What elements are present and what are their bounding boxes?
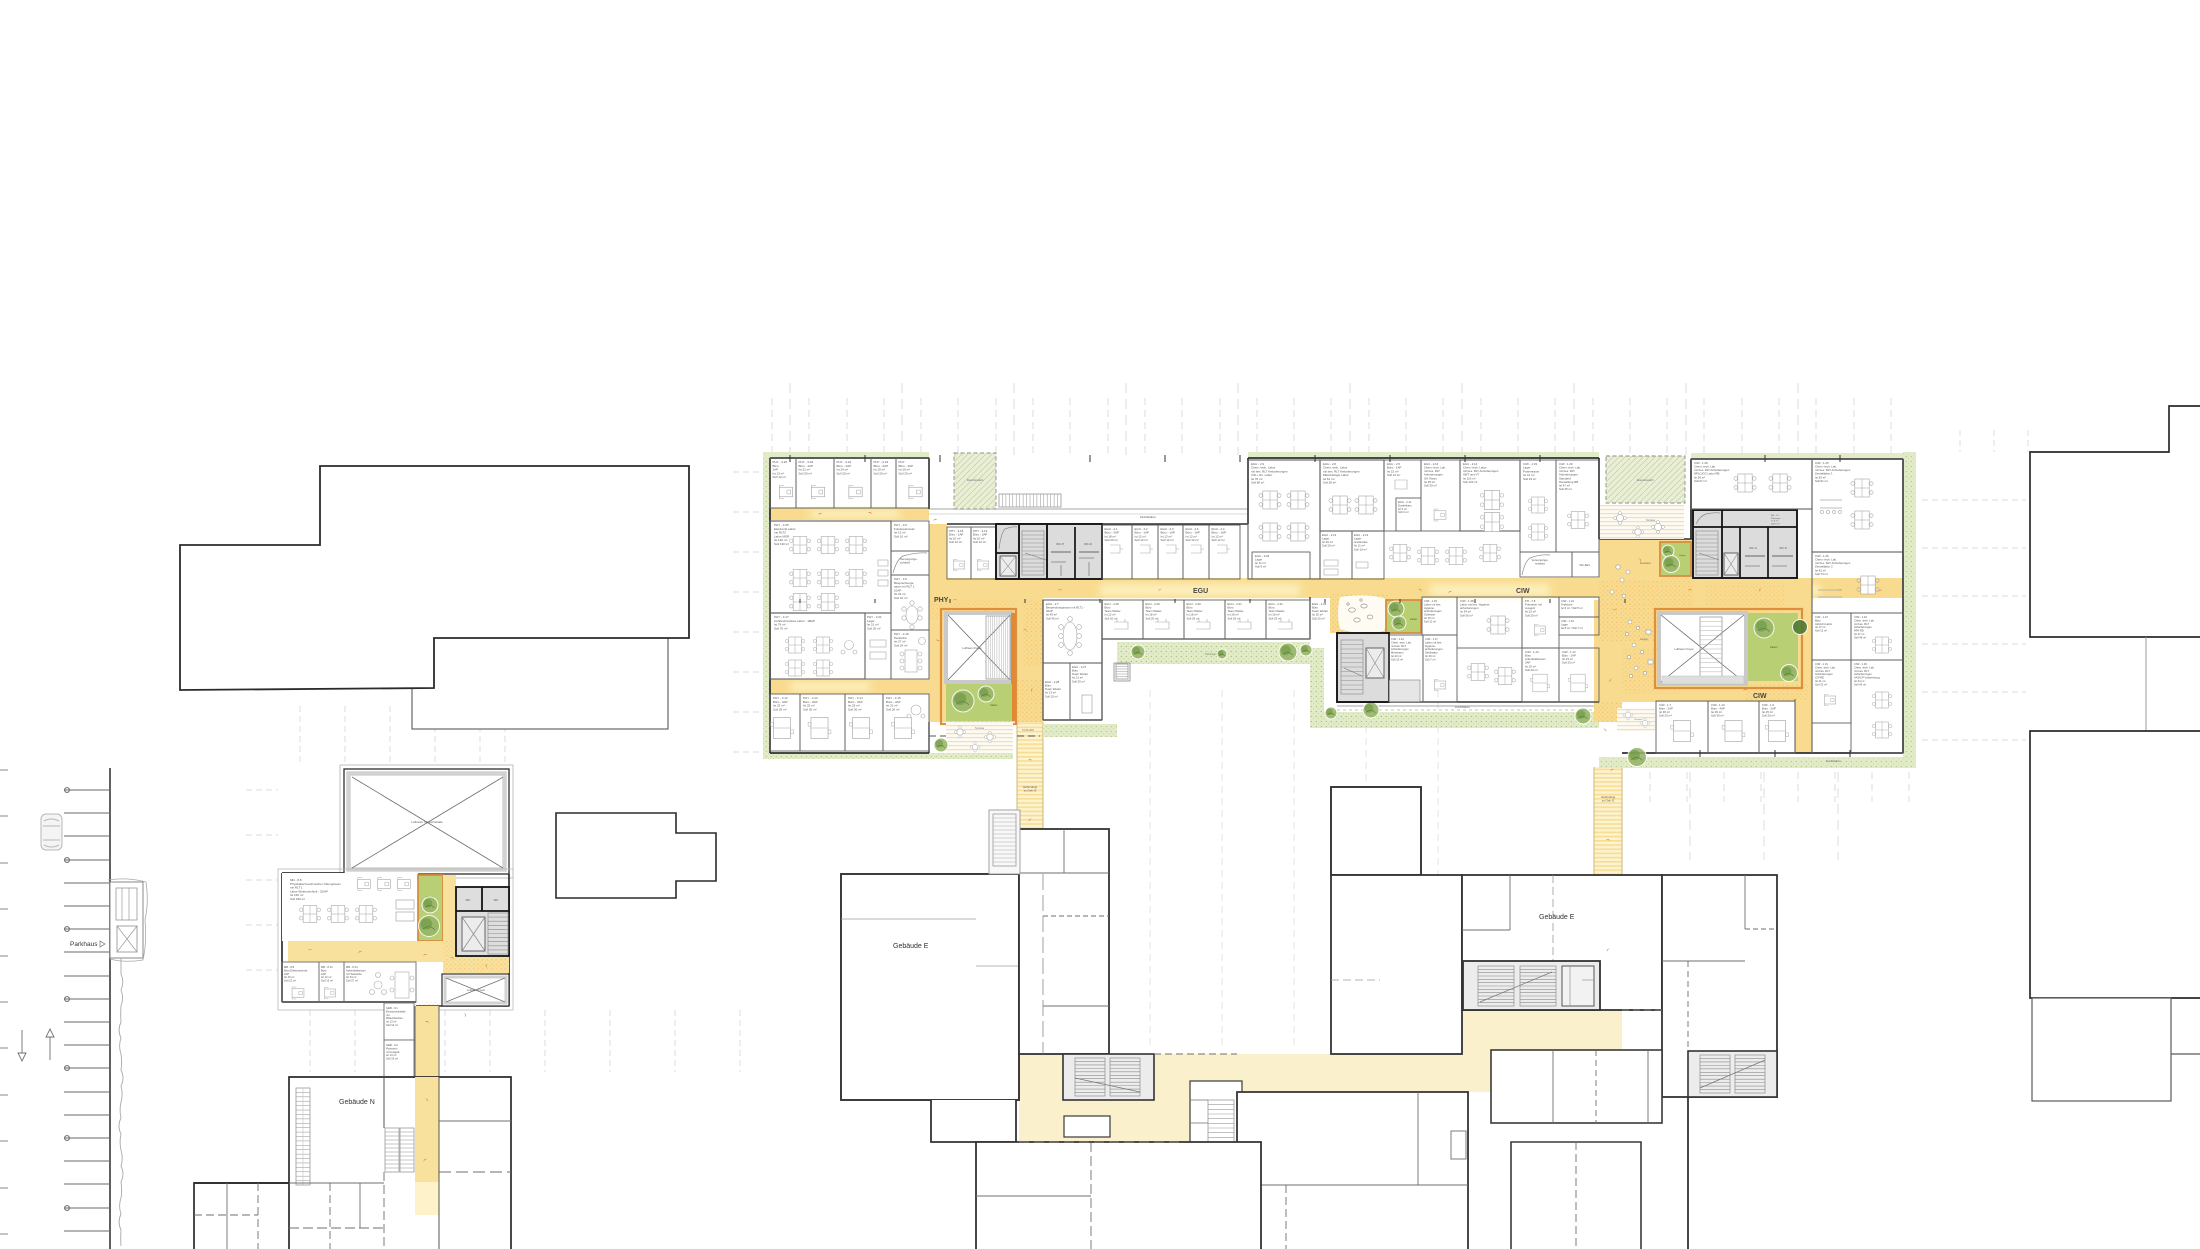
svg-text:PHY - 3.15Büro - 3APIst 31 m²S: PHY - 3.15Büro - 3APIst 31 m²Soll 26 m² — [886, 696, 901, 711]
svg-text:EGU: EGU — [1193, 588, 1208, 595]
svg-text:EGU - 2.6Büro - 1APIst 12 m²So: EGU - 2.6Büro - 1APIst 12 m²Soll 12 m² — [1186, 527, 1200, 542]
svg-text:PHY - 3.23Büro - 2APIst 19 m²S: PHY - 3.23Büro - 2APIst 19 m²Soll 20 m² — [874, 460, 889, 475]
svg-text:Fluchtbalkon: Fluchtbalkon — [1455, 705, 1470, 709]
svg-text:Luftraum Foyer: Luftraum Foyer — [962, 646, 981, 650]
svg-text:Terrasse: Terrasse — [1646, 519, 1656, 522]
svg-text:WC: WC — [466, 898, 471, 902]
svg-text:WC: WC — [494, 898, 499, 902]
svg-text:EGU - 2.3Büro - 1APIst 12 m²So: EGU - 2.3Büro - 1APIst 12 m²Soll 12 m² — [1161, 527, 1175, 542]
svg-text:Luftraum Foyer: Luftraum Foyer — [467, 988, 485, 992]
svg-text:PHY - 3.22Büro - 2APIst 24 m²S: PHY - 3.22Büro - 2APIst 24 m²Soll 20 m² — [837, 460, 852, 475]
svg-text:PHY - 3.14Büro - 3APIst 25 m²S: PHY - 3.14Büro - 3APIst 25 m²Soll 26 m² — [848, 696, 863, 711]
svg-text:Verbindungzu Geb. E: Verbindungzu Geb. E — [1023, 785, 1038, 793]
svg-text:PHY - 3.13Büro - 3APIst 25 m²S: PHY - 3.13Büro - 3APIst 25 m²Soll 26 m² — [803, 696, 818, 711]
svg-text:WC-D: WC-D — [1084, 542, 1092, 546]
svg-text:Luftraum Foyer: Luftraum Foyer — [1674, 647, 1693, 651]
svg-text:CIW: CIW — [1753, 693, 1767, 700]
svg-text:PHY - 3.16TeekücheIst 27 m²Sol: PHY - 3.16TeekücheIst 27 m²Soll 24 m² — [894, 632, 909, 647]
svg-text:Fluchtbalkon: Fluchtbalkon — [1826, 759, 1841, 763]
svg-text:GEB - 9.2Putzraummit AusgußIst: GEB - 9.2Putzraummit AusgußIst 13 m²Soll… — [386, 1043, 400, 1061]
svg-text:PHY - 3.18Büro - 1APIst 10 m²S: PHY - 3.18Büro - 1APIst 10 m²Soll 12 m² — [949, 529, 964, 544]
svg-text:CIW - 1.7Büro - 2APIst 36 m²So: CIW - 1.7Büro - 2APIst 36 m²Soll 25 m² — [1659, 703, 1673, 718]
svg-text:EGU - 2.2Büro - 1APIst 12 m²So: EGU - 2.2Büro - 1APIst 12 m²Soll 12 m² — [1135, 527, 1149, 542]
svg-text:PHY: PHY — [934, 597, 949, 604]
svg-text:Gebäude E: Gebäude E — [1539, 914, 1575, 921]
svg-text:Garten: Garten — [990, 704, 998, 707]
svg-text:CIW: CIW — [1516, 588, 1530, 595]
svg-text:EGU - 2.4Büro - 1APIst 12 m²So: EGU - 2.4Büro - 1APIst 12 m²Soll 12 m² — [1212, 527, 1226, 542]
svg-text:EGU - 2.5Büro - 1APIst 15 m²So: EGU - 2.5Büro - 1APIst 15 m²Soll 12 m² — [1387, 462, 1401, 477]
svg-text:PHY - 3.19Büro - 2APIst 10 m²S: PHY - 3.19Büro - 2APIst 10 m²Soll 12 m² — [973, 529, 988, 544]
svg-text:Lounge: Lounge — [1640, 639, 1648, 641]
svg-text:Garten: Garten — [1410, 618, 1418, 621]
svg-text:WC-H: WC-H — [1749, 546, 1756, 550]
svg-text:PHY - 3.26Büro - 2APIst 21 m²S: PHY - 3.26Büro - 2APIst 21 m²Soll 20 m² — [799, 460, 814, 475]
svg-text:Fluchtbalkon: Fluchtbalkon — [1140, 515, 1156, 519]
svg-text:CIW - 1.10Büro - 4APIst 36 m²S: CIW - 1.10Büro - 4APIst 36 m²Soll 36 m² — [1711, 703, 1725, 718]
svg-text:CIW - 1.12Büro - 2APIst 23 m²S: CIW - 1.12Büro - 2APIst 23 m²Soll 25 m² — [1562, 650, 1576, 665]
svg-text:CIW - 1.9Büro - 2APIst 25 m²So: CIW - 1.9Büro - 2APIst 25 m²Soll 20 m² — [1762, 703, 1776, 718]
svg-text:WC-Barr.: WC-Barr. — [1579, 563, 1590, 567]
svg-text:Verbindungzu Geb. E: Verbindungzu Geb. E — [1601, 795, 1616, 803]
svg-text:Garten: Garten — [1679, 554, 1686, 557]
svg-text:74 70 üNN: 74 70 üNN — [1022, 729, 1034, 732]
svg-text:Retentionsdach: Retentionsdach — [967, 479, 984, 482]
svg-text:Terrasse: Terrasse — [975, 727, 985, 730]
svg-text:EGU - 2.1Büro - 2APIst 18 m²So: EGU - 2.1Büro - 2APIst 18 m²Soll 20 m² — [1105, 527, 1119, 542]
svg-text:Retentionsdach: Retentionsdach — [1637, 479, 1654, 482]
svg-text:Kunstwerk: Kunstwerk — [1640, 562, 1652, 565]
svg-text:PHY - 3.12Büro - 3APIst 23 m²S: PHY - 3.12Büro - 3APIst 23 m²Soll 26 m² — [773, 696, 788, 711]
svg-text:WC-D: WC-D — [1779, 546, 1786, 550]
svg-text:Gebäude E: Gebäude E — [893, 943, 929, 950]
svg-text:Gebäude N: Gebäude N — [339, 1099, 375, 1106]
svg-text:Garten: Garten — [1770, 646, 1778, 649]
svg-text:Terrasse: Terrasse — [1634, 718, 1643, 721]
svg-text:Luftraum Versuchshalle: Luftraum Versuchshalle — [411, 820, 443, 824]
svg-text:EGU - 2.13LagerGarderobeIst 11: EGU - 2.13LagerGarderobeIst 11 m²Soll 10… — [1354, 533, 1369, 551]
svg-text:Parkhaus: Parkhaus — [70, 941, 98, 948]
svg-text:WC-H: WC-H — [1056, 542, 1064, 546]
